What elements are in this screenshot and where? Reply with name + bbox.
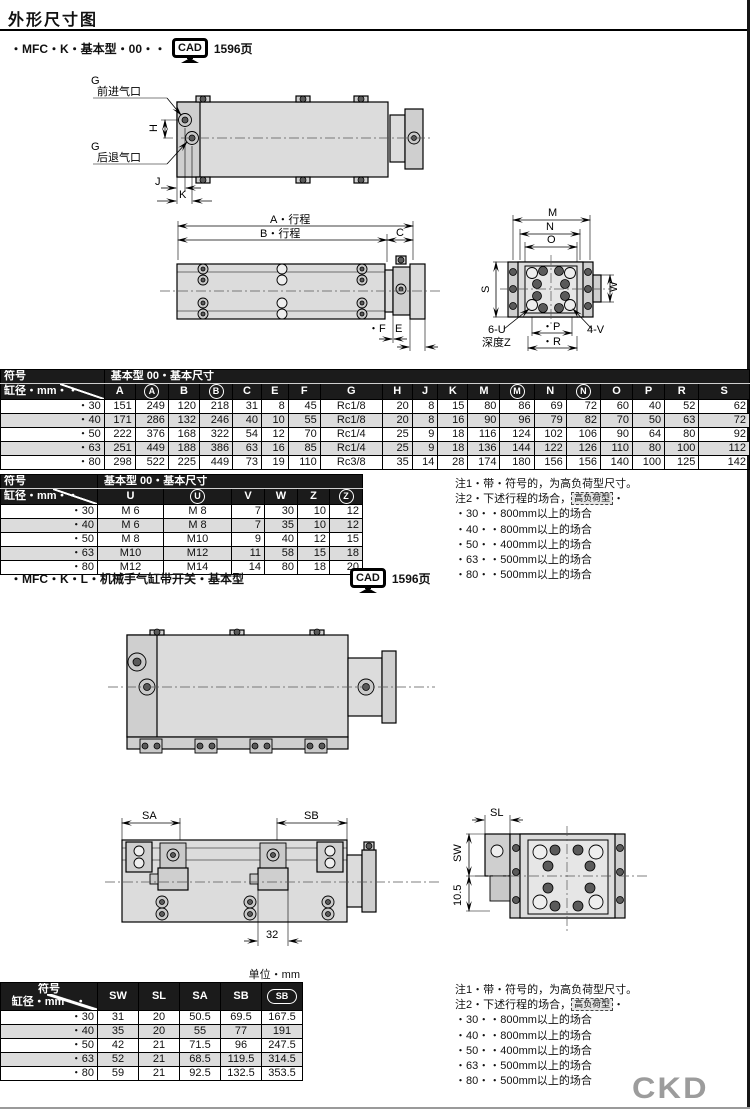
dim-cell: 28	[438, 456, 468, 470]
column-header-sl: SL	[139, 983, 180, 1011]
label-e: E	[395, 323, 402, 335]
label-m: M	[548, 207, 557, 219]
dim-cell: 35	[382, 456, 412, 470]
note-stroke-list: ・30・・800mm以上的场合・40・・800mm以上的场合・50・・400mm…	[455, 507, 637, 583]
table-row-bore-50: ・50M 8M109401215	[1, 533, 363, 547]
switch-side-view-drawing	[100, 618, 440, 763]
dim-cell: 62	[699, 400, 750, 414]
label-w: W	[608, 281, 620, 292]
dim-cell: 174	[468, 456, 500, 470]
dim-cell: 144	[500, 442, 534, 456]
dim-cell: 72	[699, 414, 750, 428]
cad-page-ref-2: 1596页	[392, 570, 431, 587]
page-title: 外形尺寸图	[8, 6, 98, 30]
note-stroke-item: ・30・・800mm以上的场合	[455, 507, 637, 522]
dim-cell: 180	[500, 456, 534, 470]
dim-cell: 125	[665, 456, 699, 470]
dim-cell: M 8	[98, 533, 164, 547]
dim-cell: 58	[265, 547, 298, 561]
column-header-b: B	[168, 384, 199, 400]
label-4v: 4-V	[587, 324, 605, 336]
dim-cell: 35	[98, 1025, 139, 1039]
label-n: N	[546, 221, 554, 233]
dim-cell: 251	[104, 442, 135, 456]
series-1-label: ・MFC・K・基本型・00・・	[10, 40, 166, 57]
table2-corner-bottom: 缸径・mm・・	[1, 489, 98, 505]
dim-cell: 40	[265, 533, 298, 547]
thread-dimensions-table: 符号 基本型 00・基本尺寸 缸径・mm・・ UUVWZZ ・30M 6M 87…	[0, 474, 363, 575]
note-stroke-item: ・63・・500mm以上的场合	[455, 1059, 637, 1074]
dim-cell: 19	[261, 456, 288, 470]
dim-cell: 9	[412, 428, 438, 442]
bore-label: ・50	[1, 428, 105, 442]
dim-cell: 35	[265, 519, 298, 533]
column-header-g: G	[320, 384, 382, 400]
note-2-highlight: 高负荷型	[571, 492, 613, 505]
bore-label: ・30	[1, 1011, 98, 1025]
dim-cell: 188	[168, 442, 199, 456]
dim-cell: 122	[534, 442, 566, 456]
label-port-backward: 后退气口	[97, 150, 141, 164]
cad-page-ref-1: 1596页	[214, 40, 253, 57]
dim-cell: 20	[382, 414, 412, 428]
dim-cell: 40	[633, 400, 665, 414]
dim-cell: 30	[265, 505, 298, 519]
dim-cell: 132.5	[221, 1067, 262, 1081]
column-header-c: C	[233, 384, 262, 400]
dim-cell: 376	[135, 428, 168, 442]
dim-cell: 20	[139, 1011, 180, 1025]
dim-cell: 69.5	[221, 1011, 262, 1025]
cylinder-body-switch-top	[105, 840, 440, 922]
dim-cell: 15	[438, 400, 468, 414]
series-header-2: ・MFC・K・L・机械手气缸带开关・基本型 CAD 1596页	[10, 568, 431, 588]
column-header-u: U	[98, 489, 164, 505]
table-row-bore-40: ・4035205577191	[1, 1025, 303, 1039]
cylinder-body-side	[163, 96, 432, 183]
column-header-b: B	[199, 384, 232, 400]
dim-cell: 10	[298, 505, 330, 519]
dim-cell: 10	[261, 414, 288, 428]
column-header-f: F	[288, 384, 320, 400]
dim-cell: 16	[261, 442, 288, 456]
note-stroke-item: ・40・・800mm以上的场合	[455, 523, 637, 538]
dim-cell: M 8	[164, 519, 232, 533]
table3-corner: 符号 缸径・mm・・	[1, 983, 98, 1011]
dim-cell: 8	[412, 414, 438, 428]
dim-cell: 8	[261, 400, 288, 414]
bore-label: ・40	[1, 519, 98, 533]
bore-label: ・30	[1, 505, 98, 519]
series-header-1: ・MFC・K・基本型・00・・ CAD 1596页	[10, 38, 253, 58]
table-row-bore-40: ・40171286132246401055Rc1/820816909679827…	[1, 414, 750, 428]
dim-cell: 168	[168, 428, 199, 442]
label-o: O	[547, 234, 556, 246]
column-header-sb: SB	[221, 983, 262, 1011]
title-divider	[0, 29, 750, 31]
note-stroke-item: ・80・・500mm以上的场合	[455, 568, 637, 583]
dim-cell: 322	[199, 428, 232, 442]
dim-cell: 171	[104, 414, 135, 428]
dim-cell: M12	[164, 547, 232, 561]
dim-cell: 45	[288, 400, 320, 414]
dim-cell: 218	[199, 400, 232, 414]
bore-label: ・50	[1, 533, 98, 547]
bore-label: ・30	[1, 400, 105, 414]
dim-cell: 31	[98, 1011, 139, 1025]
dim-cell: 72	[566, 400, 600, 414]
dim-cell: 247.5	[262, 1039, 303, 1053]
label-h: H	[148, 124, 160, 132]
dim-cell: 79	[534, 414, 566, 428]
dim-cell: 156	[566, 456, 600, 470]
column-header-r: R	[665, 384, 699, 400]
table-row-bore-30: ・30312050.569.5167.5	[1, 1011, 303, 1025]
dim-cell: 31	[233, 400, 262, 414]
table-row-bore-30: ・3015124912021831845Rc1/8208158086697260…	[1, 400, 750, 414]
dim-cell: 9	[412, 442, 438, 456]
dim-cell: 20	[139, 1025, 180, 1039]
label-f: ・F	[368, 323, 386, 335]
dim-cell: 50	[633, 414, 665, 428]
label-sa: SA	[142, 810, 157, 822]
dim-cell: 69	[534, 400, 566, 414]
dim-cell: 14	[412, 456, 438, 470]
dim-cell: 90	[468, 414, 500, 428]
dim-cell: 449	[199, 456, 232, 470]
dim-cell: 126	[566, 442, 600, 456]
column-header-z: Z	[330, 489, 363, 505]
dim-cell: 7	[232, 519, 265, 533]
bore-label: ・40	[1, 414, 105, 428]
note-stroke-item: ・63・・500mm以上的场合	[455, 553, 637, 568]
label-c: C	[396, 227, 404, 239]
dim-cell: 15	[330, 533, 363, 547]
column-header-sw: SW	[98, 983, 139, 1011]
note-stroke-item: ・30・・800mm以上的场合	[455, 1013, 637, 1028]
column-header-z: Z	[298, 489, 330, 505]
column-header-w: W	[265, 489, 298, 505]
bore-label: ・50	[1, 1039, 98, 1053]
column-header-sa: SA	[180, 983, 221, 1011]
dim-cell: 142	[699, 456, 750, 470]
cylinder-body-top	[160, 256, 442, 319]
dim-cell: 16	[438, 414, 468, 428]
dim-cell: 64	[633, 428, 665, 442]
dim-cell: 12	[298, 533, 330, 547]
dim-cell: 151	[104, 400, 135, 414]
dim-cell: 10	[298, 519, 330, 533]
dim-cell: M10	[164, 533, 232, 547]
table-row-bore-63: ・63M10M1211581518	[1, 547, 363, 561]
dim-cell: 42	[98, 1039, 139, 1053]
column-header-u: U	[164, 489, 232, 505]
cad-monitor-icon-2: CAD	[350, 568, 386, 588]
unit-label: 单位・mm	[180, 966, 300, 982]
dim-cell: 80	[665, 428, 699, 442]
dim-cell: M 6	[98, 505, 164, 519]
label-r: ・R	[542, 336, 561, 348]
dim-cell: 8	[412, 400, 438, 414]
dim-cell: 55	[288, 414, 320, 428]
column-header-s: S	[699, 384, 750, 400]
table-row-bore-50: ・50222376168322541270Rc1/425918116124102…	[1, 428, 750, 442]
column-header-a: A	[104, 384, 135, 400]
dim-cell: M 8	[164, 505, 232, 519]
note-stroke-item: ・80・・500mm以上的场合	[455, 1074, 637, 1089]
dim-cell: 25	[382, 428, 412, 442]
dim-cell: 54	[233, 428, 262, 442]
dim-cell: 249	[135, 400, 168, 414]
dim-cell: 100	[665, 442, 699, 456]
table-row-bore-40: ・40M 6M 87351012	[1, 519, 363, 533]
dim-cell: 21	[139, 1067, 180, 1081]
dim-cell: 20	[382, 400, 412, 414]
dim-cell: 18	[438, 442, 468, 456]
column-header-p: P	[633, 384, 665, 400]
note-stroke-item: ・40・・800mm以上的场合	[455, 1029, 637, 1044]
dim-cell: Rc1/4	[320, 428, 382, 442]
dim-cell: 85	[288, 442, 320, 456]
note-2b-highlight: 高负荷型	[571, 998, 613, 1011]
bore-label: ・63	[1, 547, 98, 561]
end-block	[500, 255, 612, 327]
label-s: S	[480, 286, 492, 293]
dim-cell: 77	[221, 1025, 262, 1039]
table-row-bore-63: ・63251449188386631685Rc1/425918136144122…	[1, 442, 750, 456]
dim-cell: 106	[566, 428, 600, 442]
dim-cell: M10	[98, 547, 164, 561]
label-k: K	[179, 189, 187, 201]
bore-label: ・63	[1, 1053, 98, 1067]
dim-cell: 25	[382, 442, 412, 456]
dim-cell: 110	[600, 442, 632, 456]
dim-cell: 386	[199, 442, 232, 456]
series-2-label: ・MFC・K・L・机械手气缸带开关・基本型	[10, 570, 244, 587]
table-row-bore-50: ・50422171.596247.5	[1, 1039, 303, 1053]
dim-cell: 40	[233, 414, 262, 428]
column-header-k: K	[438, 384, 468, 400]
label-sw: SW	[452, 844, 464, 862]
dim-cell: 52	[665, 400, 699, 414]
dim-cell: 21	[139, 1053, 180, 1067]
dim-cell: 68.5	[180, 1053, 221, 1067]
column-header-sb: SB	[262, 983, 303, 1011]
note-2b: 注2・下述行程的场合，高负荷型・	[455, 998, 637, 1013]
note-stroke-list-b: ・30・・800mm以上的场合・40・・800mm以上的场合・50・・400mm…	[455, 1013, 637, 1089]
dim-cell: 12	[330, 505, 363, 519]
label-b-stroke: B・行程	[260, 227, 300, 240]
label-32: 32	[266, 929, 278, 941]
column-header-m: M	[500, 384, 534, 400]
column-header-a: A	[135, 384, 168, 400]
dim-cell: 7	[232, 505, 265, 519]
dim-cell: 55	[180, 1025, 221, 1039]
column-header-e: E	[261, 384, 288, 400]
table-row-bore-30: ・30M 6M 87301012	[1, 505, 363, 519]
dim-cell: 156	[534, 456, 566, 470]
column-header-o: O	[600, 384, 632, 400]
end-block-switch	[475, 826, 650, 931]
dim-cell: 71.5	[180, 1039, 221, 1053]
table-row-bore-80: ・80592192.5132.5353.5	[1, 1067, 303, 1081]
label-sl: SL	[490, 807, 503, 819]
cad-monitor-icon: CAD	[172, 38, 208, 58]
dim-cell: 225	[168, 456, 199, 470]
bore-label: ・40	[1, 1025, 98, 1039]
dim-cell: 63	[233, 442, 262, 456]
switch-dimensions-table: 符号 缸径・mm・・ SWSLSASBSB ・30312050.569.5167…	[0, 982, 303, 1081]
dim-cell: 314.5	[262, 1053, 303, 1067]
dim-cell: 246	[199, 414, 232, 428]
dim-cell: 119.5	[221, 1053, 262, 1067]
bore-label: ・63	[1, 442, 105, 456]
ckd-logo: CKD	[632, 1072, 709, 1106]
dim-cell: 116	[468, 428, 500, 442]
table1-corner-bottom: 缸径・mm・・	[1, 384, 105, 400]
dim-cell: Rc1/4	[320, 442, 382, 456]
table1-corner-top: 符号	[1, 370, 105, 384]
dim-cell: 11	[232, 547, 265, 561]
side-view-drawing: G 前进气口 G 后退气口 H J K	[55, 72, 435, 212]
dim-cell: 110	[288, 456, 320, 470]
dim-cell: 80	[468, 400, 500, 414]
column-header-h: H	[382, 384, 412, 400]
notes-top: 注1・带・符号的，为高负荷型尺寸。 注2・下述行程的场合，高负荷型・ ・30・・…	[455, 477, 637, 583]
dim-cell: 21	[139, 1039, 180, 1053]
dim-cell: 59	[98, 1067, 139, 1081]
dim-cell: 120	[168, 400, 199, 414]
basic-dimensions-table: 符号 基本型 00・基本尺寸 缸径・mm・・ AABBCEFGHJKMMNNOP…	[0, 369, 750, 470]
label-port-forward: 前进气口	[97, 84, 141, 98]
column-header-n: N	[566, 384, 600, 400]
dim-cell: 12	[330, 519, 363, 533]
label-sb: SB	[304, 810, 319, 822]
table2-corner-top: 符号	[1, 475, 98, 489]
dim-cell: 112	[699, 442, 750, 456]
dim-cell: 60	[600, 400, 632, 414]
dim-cell: Rc3/8	[320, 456, 382, 470]
top-view-drawing: A・行程 B・行程 C	[100, 212, 445, 362]
dim-cell: 18	[330, 547, 363, 561]
dim-cell: 222	[104, 428, 135, 442]
column-header-n: N	[534, 384, 566, 400]
cylinder-body-switch-side	[108, 629, 435, 753]
table-row-bore-63: ・63522168.5119.5314.5	[1, 1053, 303, 1067]
dim-cell: 82	[566, 414, 600, 428]
dim-cell: 298	[104, 456, 135, 470]
dim-cell: 12	[261, 428, 288, 442]
dim-cell: 353.5	[262, 1067, 303, 1081]
label-p: ・P	[542, 321, 560, 333]
dim-cell: M 6	[98, 519, 164, 533]
column-header-m: M	[468, 384, 500, 400]
dim-cell: 70	[288, 428, 320, 442]
table2-span-header: 基本型 00・基本尺寸	[98, 475, 363, 489]
column-header-j: J	[412, 384, 438, 400]
dim-cell: 124	[500, 428, 534, 442]
switch-top-view-drawing: SA SB	[100, 810, 445, 960]
label-a-stroke: A・行程	[270, 213, 310, 226]
dim-cell: 100	[633, 456, 665, 470]
dim-cell: 73	[233, 456, 262, 470]
bore-label: ・80	[1, 1067, 98, 1081]
dim-cell: 102	[534, 428, 566, 442]
label-depth-z: 深度Z	[482, 335, 511, 349]
dim-cell: 96	[500, 414, 534, 428]
note-1: 注1・带・符号的，为高负荷型尺寸。	[455, 477, 637, 492]
note-1b: 注1・带・符号的，为高负荷型尺寸。	[455, 983, 637, 998]
column-header-v: V	[232, 489, 265, 505]
dim-cell: 63	[665, 414, 699, 428]
end-view-drawing: M N O S W	[480, 205, 740, 365]
dim-cell: Rc1/8	[320, 414, 382, 428]
table-row-bore-80: ・802985222254497319110Rc3/83514281741801…	[1, 456, 750, 470]
note-stroke-item: ・50・・400mm以上的场合	[455, 1044, 637, 1059]
dim-cell: 9	[232, 533, 265, 547]
table1-span-header: 基本型 00・基本尺寸	[104, 370, 749, 384]
dim-cell: 70	[600, 414, 632, 428]
dim-cell: 92.5	[180, 1067, 221, 1081]
bore-label: ・80	[1, 456, 105, 470]
dim-cell: 96	[221, 1039, 262, 1053]
dim-cell: 90	[600, 428, 632, 442]
dim-cell: 136	[468, 442, 500, 456]
dim-cell: 15	[298, 547, 330, 561]
label-10-5: 10.5	[452, 885, 464, 906]
label-j: J	[155, 176, 161, 188]
dim-cell: 286	[135, 414, 168, 428]
dim-cell: 80	[633, 442, 665, 456]
dim-cell: 167.5	[262, 1011, 303, 1025]
note-2: 注2・下述行程的场合，高负荷型・	[455, 492, 637, 507]
dim-cell: 132	[168, 414, 199, 428]
dim-cell: 140	[600, 456, 632, 470]
dim-cell: 50.5	[180, 1011, 221, 1025]
dim-cell: 86	[500, 400, 534, 414]
note-stroke-item: ・50・・400mm以上的场合	[455, 538, 637, 553]
notes-bottom: 注1・带・符号的，为高负荷型尺寸。 注2・下述行程的场合，高负荷型・ ・30・・…	[455, 983, 637, 1089]
dim-cell: 92	[699, 428, 750, 442]
dim-cell: 191	[262, 1025, 303, 1039]
catalog-page: 外形尺寸图 ・MFC・K・基本型・00・・ CAD 1596页	[0, 0, 750, 1109]
dim-cell: Rc1/8	[320, 400, 382, 414]
dim-cell: 18	[438, 428, 468, 442]
dim-cell: 52	[98, 1053, 139, 1067]
switch-end-view-drawing: SL SW 10.5	[450, 806, 730, 956]
label-6u: 6-U	[488, 324, 506, 336]
dim-cell: 522	[135, 456, 168, 470]
dim-cell: 449	[135, 442, 168, 456]
